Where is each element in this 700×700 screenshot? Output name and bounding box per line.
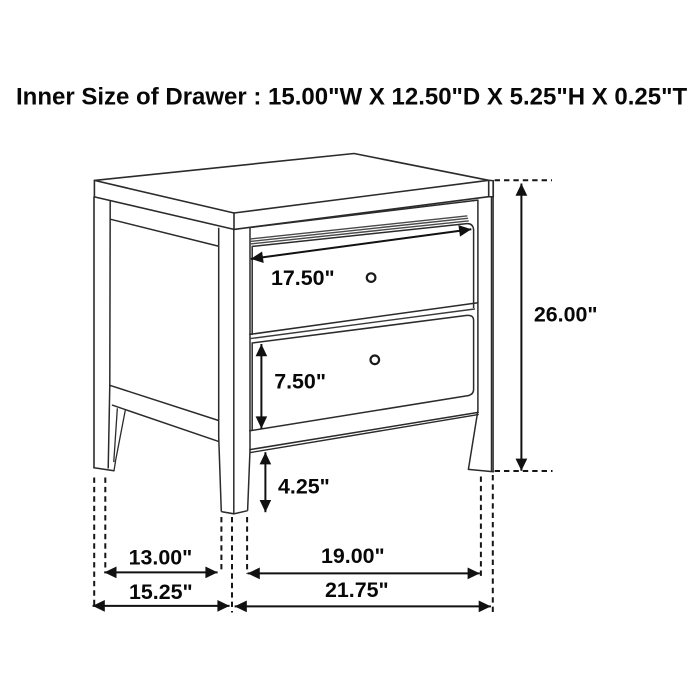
svg-text:26.00": 26.00" — [534, 303, 598, 327]
svg-text:13.00": 13.00" — [129, 545, 193, 569]
svg-text:17.50": 17.50" — [271, 266, 335, 290]
svg-text:15.25": 15.25" — [129, 580, 193, 604]
svg-text:Inner Size of Drawer : 15.00"W: Inner Size of Drawer : 15.00"W X 12.50"D… — [16, 84, 687, 111]
svg-text:4.25": 4.25" — [278, 474, 330, 498]
svg-text:7.50": 7.50" — [274, 369, 326, 393]
svg-text:21.75": 21.75" — [325, 578, 389, 602]
svg-text:19.00": 19.00" — [321, 544, 385, 568]
